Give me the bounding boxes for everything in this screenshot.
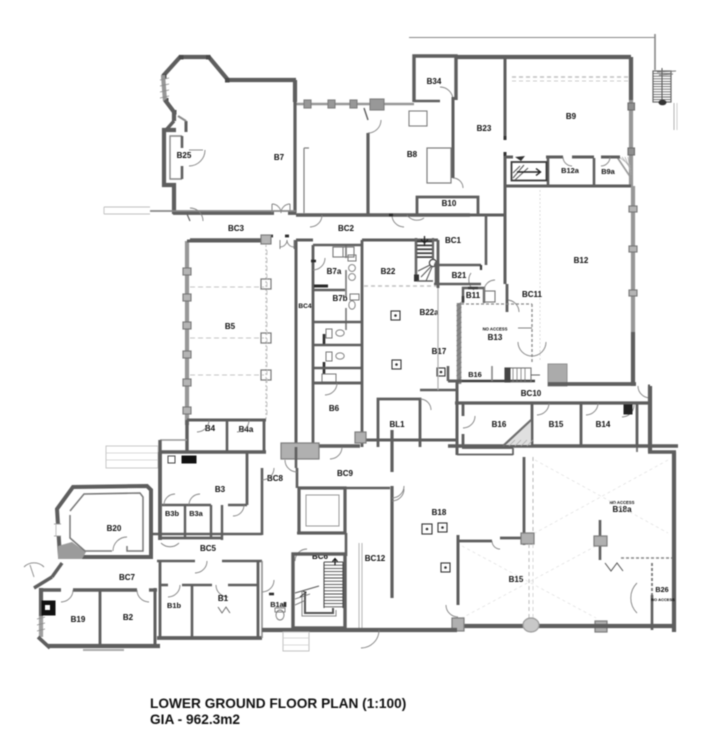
svg-text:B1b: B1b bbox=[167, 601, 181, 610]
svg-text:B9a: B9a bbox=[601, 167, 615, 176]
svg-text:B4a: B4a bbox=[239, 425, 254, 434]
svg-text:B5: B5 bbox=[225, 322, 236, 331]
svg-text:BC3: BC3 bbox=[228, 224, 245, 233]
svg-text:B8: B8 bbox=[407, 150, 418, 159]
svg-text:B23: B23 bbox=[477, 124, 492, 133]
svg-text:B4: B4 bbox=[205, 424, 216, 433]
svg-text:B11: B11 bbox=[466, 291, 481, 300]
svg-text:B3: B3 bbox=[215, 485, 226, 494]
svg-text:B34: B34 bbox=[427, 77, 442, 86]
svg-text:B14: B14 bbox=[596, 420, 611, 429]
svg-text:B15: B15 bbox=[549, 420, 564, 429]
svg-text:B3b: B3b bbox=[165, 509, 179, 518]
svg-text:B18: B18 bbox=[432, 508, 447, 517]
svg-text:B9: B9 bbox=[566, 112, 577, 121]
svg-text:B10: B10 bbox=[442, 199, 457, 208]
svg-text:GIA - 962.3m2: GIA - 962.3m2 bbox=[150, 712, 240, 727]
svg-text:BC8: BC8 bbox=[267, 474, 284, 483]
svg-text:LOWER GROUND FLOOR PLAN (1:100: LOWER GROUND FLOOR PLAN (1:100) bbox=[150, 696, 406, 711]
svg-text:B25: B25 bbox=[177, 151, 192, 160]
svg-text:B20: B20 bbox=[107, 524, 122, 533]
svg-text:BL1: BL1 bbox=[389, 420, 405, 429]
svg-text:BC11: BC11 bbox=[522, 290, 543, 299]
svg-text:B16: B16 bbox=[492, 420, 507, 429]
svg-text:B12: B12 bbox=[574, 256, 589, 265]
svg-text:BC4: BC4 bbox=[298, 303, 312, 310]
svg-text:B18a: B18a bbox=[612, 505, 632, 514]
svg-text:B22: B22 bbox=[381, 267, 396, 276]
svg-text:BC12: BC12 bbox=[365, 554, 386, 563]
svg-text:B7b: B7b bbox=[332, 294, 347, 303]
svg-text:B19: B19 bbox=[71, 615, 86, 624]
svg-text:B17: B17 bbox=[432, 347, 447, 356]
svg-text:B26: B26 bbox=[655, 585, 668, 594]
svg-text:BC5: BC5 bbox=[200, 544, 217, 553]
svg-text:B3a: B3a bbox=[189, 509, 203, 518]
svg-text:B16: B16 bbox=[468, 370, 482, 379]
svg-text:BC10: BC10 bbox=[521, 389, 542, 398]
svg-text:NO ACCESS: NO ACCESS bbox=[483, 327, 508, 332]
svg-text:B2: B2 bbox=[123, 613, 134, 622]
svg-text:B7: B7 bbox=[274, 153, 285, 162]
svg-text:B22a: B22a bbox=[419, 308, 439, 317]
svg-text:BC7: BC7 bbox=[119, 573, 136, 582]
svg-text:B21: B21 bbox=[452, 271, 467, 280]
svg-text:BC9: BC9 bbox=[337, 469, 354, 478]
svg-text:B12a: B12a bbox=[561, 166, 580, 175]
svg-text:B1: B1 bbox=[218, 594, 229, 603]
svg-text:B6: B6 bbox=[329, 404, 340, 413]
svg-text:B7a: B7a bbox=[327, 267, 342, 276]
svg-text:NO ACCESS: NO ACCESS bbox=[651, 597, 675, 602]
svg-text:B13: B13 bbox=[488, 333, 503, 342]
svg-text:BC2: BC2 bbox=[338, 224, 355, 233]
svg-text:BC1: BC1 bbox=[445, 236, 462, 245]
svg-text:B15: B15 bbox=[509, 575, 524, 584]
